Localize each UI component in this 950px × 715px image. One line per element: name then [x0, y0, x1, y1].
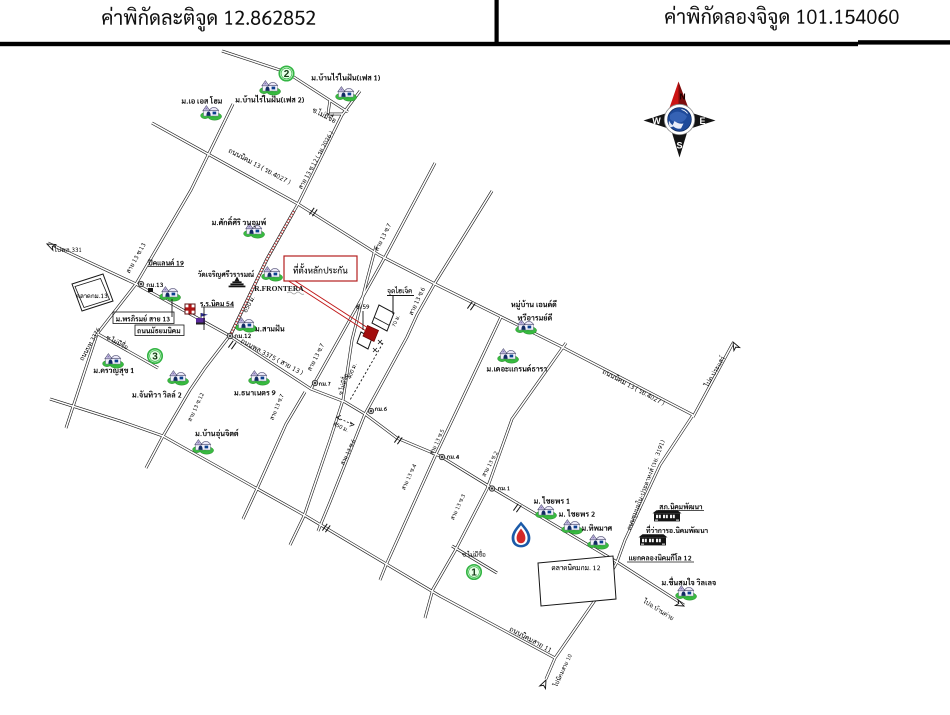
svg-text:W: W [652, 116, 661, 126]
svg-text:3: 3 [152, 352, 158, 363]
svg-text:N: N [679, 92, 685, 102]
svg-text:S: S [676, 141, 682, 151]
svg-text:2: 2 [284, 69, 290, 80]
svg-text:E: E [699, 116, 705, 126]
svg-text:1: 1 [471, 568, 477, 579]
svg-text:R.FRONTERA: R.FRONTERA [254, 284, 304, 293]
